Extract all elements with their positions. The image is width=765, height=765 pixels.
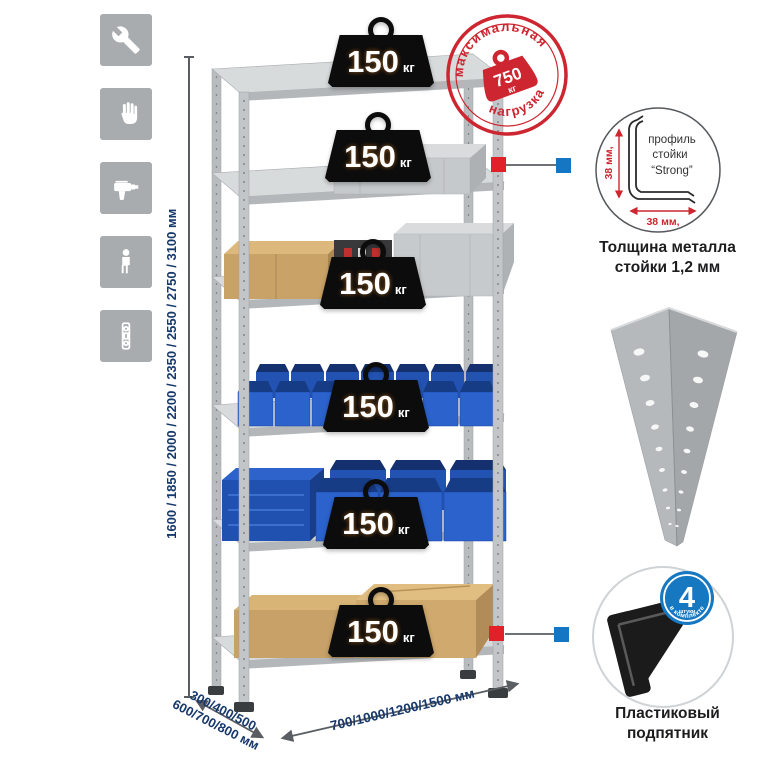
load-unit: кг (403, 630, 415, 645)
profile-label-3: “Strong” (651, 165, 693, 177)
tile-wrench (100, 14, 152, 66)
load-badge-3: 150кг (320, 239, 426, 309)
load-value: 150 (342, 391, 394, 422)
foot-caption-line1: Пластиковый (585, 704, 750, 724)
load-badge-2: 150кг (325, 112, 431, 182)
load-unit: кг (403, 60, 415, 75)
tile-mounting-strip (100, 310, 152, 362)
blue-crate (222, 468, 324, 541)
load-value: 150 (339, 268, 391, 299)
load-badge-1: 150кг (328, 17, 434, 87)
infographic-canvas: 1600 / 1850 / 2000 / 2200 / 2350 / 2550 … (0, 0, 765, 765)
callout-blue-square-bottom (554, 627, 569, 642)
plastic-foot (460, 670, 476, 679)
load-value: 150 (347, 616, 399, 647)
mounting-strip-icon (111, 321, 141, 351)
max-load-stamp: максимальная нагрузка 750 кг (440, 8, 575, 143)
profile-caption-line1: Толщина металла (580, 238, 755, 258)
height-dim-label: 1600 / 1850 / 2000 / 2200 / 2350 / 2550 … (164, 49, 180, 699)
profile-caption: Толщина металла стойки 1,2 мм (580, 238, 755, 278)
load-badge-5: 150кг (323, 479, 429, 549)
load-value: 150 (342, 508, 394, 539)
callout-blue-square-top (556, 158, 571, 173)
tile-person (100, 236, 152, 288)
profile-label-1: профиль (648, 134, 696, 146)
plastic-foot (208, 686, 224, 695)
callout-red-square-bottom (489, 626, 504, 641)
back-left-post (212, 69, 221, 688)
load-unit: кг (400, 155, 412, 170)
profile-dim-v: 38 мм, (603, 146, 615, 179)
load-badge-4: 150кг (323, 362, 429, 432)
profile-label-2: стойки (652, 149, 687, 161)
profile-caption-line2: стойки 1,2 мм (580, 258, 755, 278)
load-value: 150 (347, 46, 399, 77)
foot-detail-circle: 4 штуки в комплекте (585, 558, 750, 723)
load-unit: кг (398, 405, 410, 420)
person-icon (111, 247, 141, 277)
corner-post-image (595, 300, 755, 560)
wrench-icon (111, 25, 141, 55)
drill-icon (111, 173, 141, 203)
tile-gloves (100, 88, 152, 140)
load-unit: кг (395, 282, 407, 297)
tile-drill (100, 162, 152, 214)
count-badge: 4 штуки в комплекте (660, 571, 714, 625)
profile-detail-circle: 38 мм, 38 мм, профиль стойки “Strong” (585, 100, 735, 250)
load-badge-6: 150кг (328, 587, 434, 657)
profile-dim-h: 38 мм, (646, 216, 679, 228)
callout-red-square-top (491, 157, 506, 172)
foot-caption: Пластиковый подпятник (585, 704, 750, 744)
load-value: 150 (344, 141, 396, 172)
foot-caption-line2: подпятник (585, 724, 750, 744)
load-unit: кг (398, 522, 410, 537)
gloves-icon (111, 99, 141, 129)
